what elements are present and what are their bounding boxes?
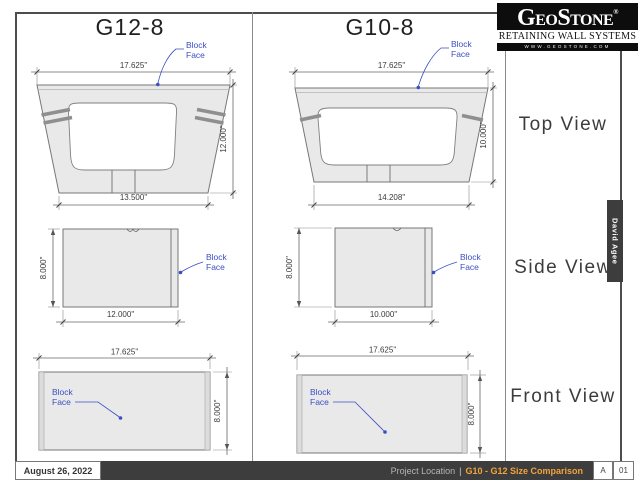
project-location-label: Project Location xyxy=(391,466,456,476)
block-face-label: Face xyxy=(451,49,470,59)
leader-dot xyxy=(156,83,160,87)
logo-website: WWW.GEOSTONE.COM xyxy=(497,43,638,51)
leader-line xyxy=(419,48,450,86)
block-face-label: Block xyxy=(186,40,208,50)
block-face-label: Face xyxy=(186,50,205,60)
g12-core-cutout xyxy=(68,103,176,170)
leader-line xyxy=(158,49,184,83)
dim-arrow xyxy=(478,375,482,381)
sheet-title: G10 - G12 Size Comparison xyxy=(465,466,583,476)
block-face-label: Face xyxy=(460,262,479,272)
top-view-label: Top View xyxy=(506,114,620,136)
dim-arrow xyxy=(478,447,482,453)
g12-title: G12-8 xyxy=(70,14,190,41)
date-field: August 26, 2022 xyxy=(15,461,101,480)
g10-front-view-drawing: 17.625" 8.000" Block Face xyxy=(287,345,500,460)
g10-top-width-dim: 17.625" xyxy=(378,61,405,70)
leader-dot xyxy=(383,430,387,434)
logo-letter: G xyxy=(517,6,535,30)
g10-bottom-width-dim: 14.208" xyxy=(378,193,405,202)
block-face-label: Face xyxy=(206,262,225,272)
sheet-number-box: 01 xyxy=(613,461,634,480)
dim-arrow xyxy=(51,229,55,235)
g12-front-width-dim: 17.625" xyxy=(111,348,138,357)
g10-title: G10-8 xyxy=(320,14,440,41)
g12-front-height-dim: 8.000" xyxy=(213,399,222,422)
column-divider-left xyxy=(252,12,253,461)
registered-mark: ® xyxy=(613,8,618,16)
logo-brand-text: GEOSTONE® xyxy=(497,3,638,30)
g12-side-width-dim: 12.000" xyxy=(107,310,134,319)
side-view-label: Side View xyxy=(506,257,620,279)
leader-dot xyxy=(417,86,421,90)
g12-side-view-drawing: 8.000" 12.000" Block Face xyxy=(40,220,245,335)
g12-front-view-drawing: 17.625" 8.000" Block Face xyxy=(30,345,245,460)
block-face-label: Block xyxy=(310,387,332,397)
edge-strip xyxy=(297,375,302,453)
leader-line xyxy=(434,262,457,272)
g12-top-view-drawing: 17.625" 13.500" 12.000" Block Face xyxy=(25,38,245,225)
g10-side-view-outline xyxy=(335,228,432,307)
block-face-label: Block xyxy=(460,252,482,262)
g12-front-view-outline xyxy=(39,372,210,450)
g10-side-height-dim: 8.000" xyxy=(285,256,294,279)
logo-letter: S xyxy=(557,6,570,30)
logo-letter: EO xyxy=(535,13,557,29)
separator: | xyxy=(459,466,461,476)
block-face-label: Block xyxy=(206,252,228,262)
leader-dot xyxy=(119,416,123,420)
drawing-sheet: G12-8 G10-8 17.625" 13.500" 12.000" Bloc… xyxy=(0,0,638,493)
geostone-logo: GEOSTONE® RETAINING WALL SYSTEMS WWW.GEO… xyxy=(497,3,638,50)
edge-strip xyxy=(205,372,210,450)
logo-letter: TONE xyxy=(570,13,613,29)
g10-front-height-dim: 8.000" xyxy=(467,402,476,425)
block-face-label: Block xyxy=(52,387,74,397)
g12-side-height-dim: 8.000" xyxy=(39,256,48,279)
g10-front-width-dim: 17.625" xyxy=(369,346,396,355)
g10-core-cutout xyxy=(318,108,457,165)
dim-arrow xyxy=(297,301,301,307)
g12-bottom-width-dim: 13.500" xyxy=(120,193,147,202)
g12-depth-dim: 12.000" xyxy=(219,125,228,152)
g12-side-view-outline xyxy=(63,229,178,307)
g12-top-width-dim: 17.625" xyxy=(120,61,147,70)
logo-tagline: RETAINING WALL SYSTEMS xyxy=(497,30,638,43)
block-face-label: Face xyxy=(52,397,71,407)
g10-depth-dim: 10.000" xyxy=(479,121,488,148)
author-tab: David Agee xyxy=(607,200,623,282)
g10-top-view-drawing: 17.625" 14.208" 10.000" Block Face xyxy=(285,38,503,225)
dim-arrow xyxy=(297,228,301,234)
project-bar: Project Location | G10 - G12 Size Compar… xyxy=(101,461,593,480)
g10-side-width-dim: 10.000" xyxy=(370,310,397,319)
leader-dot xyxy=(179,271,183,275)
dim-arrow xyxy=(225,444,229,450)
block-face-label: Block xyxy=(451,39,473,49)
block-face-label: Face xyxy=(310,397,329,407)
g10-side-view-drawing: 8.000" 10.000" Block Face xyxy=(285,220,503,335)
front-view-label: Front View xyxy=(506,386,620,408)
leader-dot xyxy=(432,271,436,275)
dim-arrow xyxy=(51,301,55,307)
dim-arrow xyxy=(225,372,229,378)
revision-box: A xyxy=(593,461,613,480)
leader-line xyxy=(181,262,203,272)
edge-strip xyxy=(39,372,44,450)
